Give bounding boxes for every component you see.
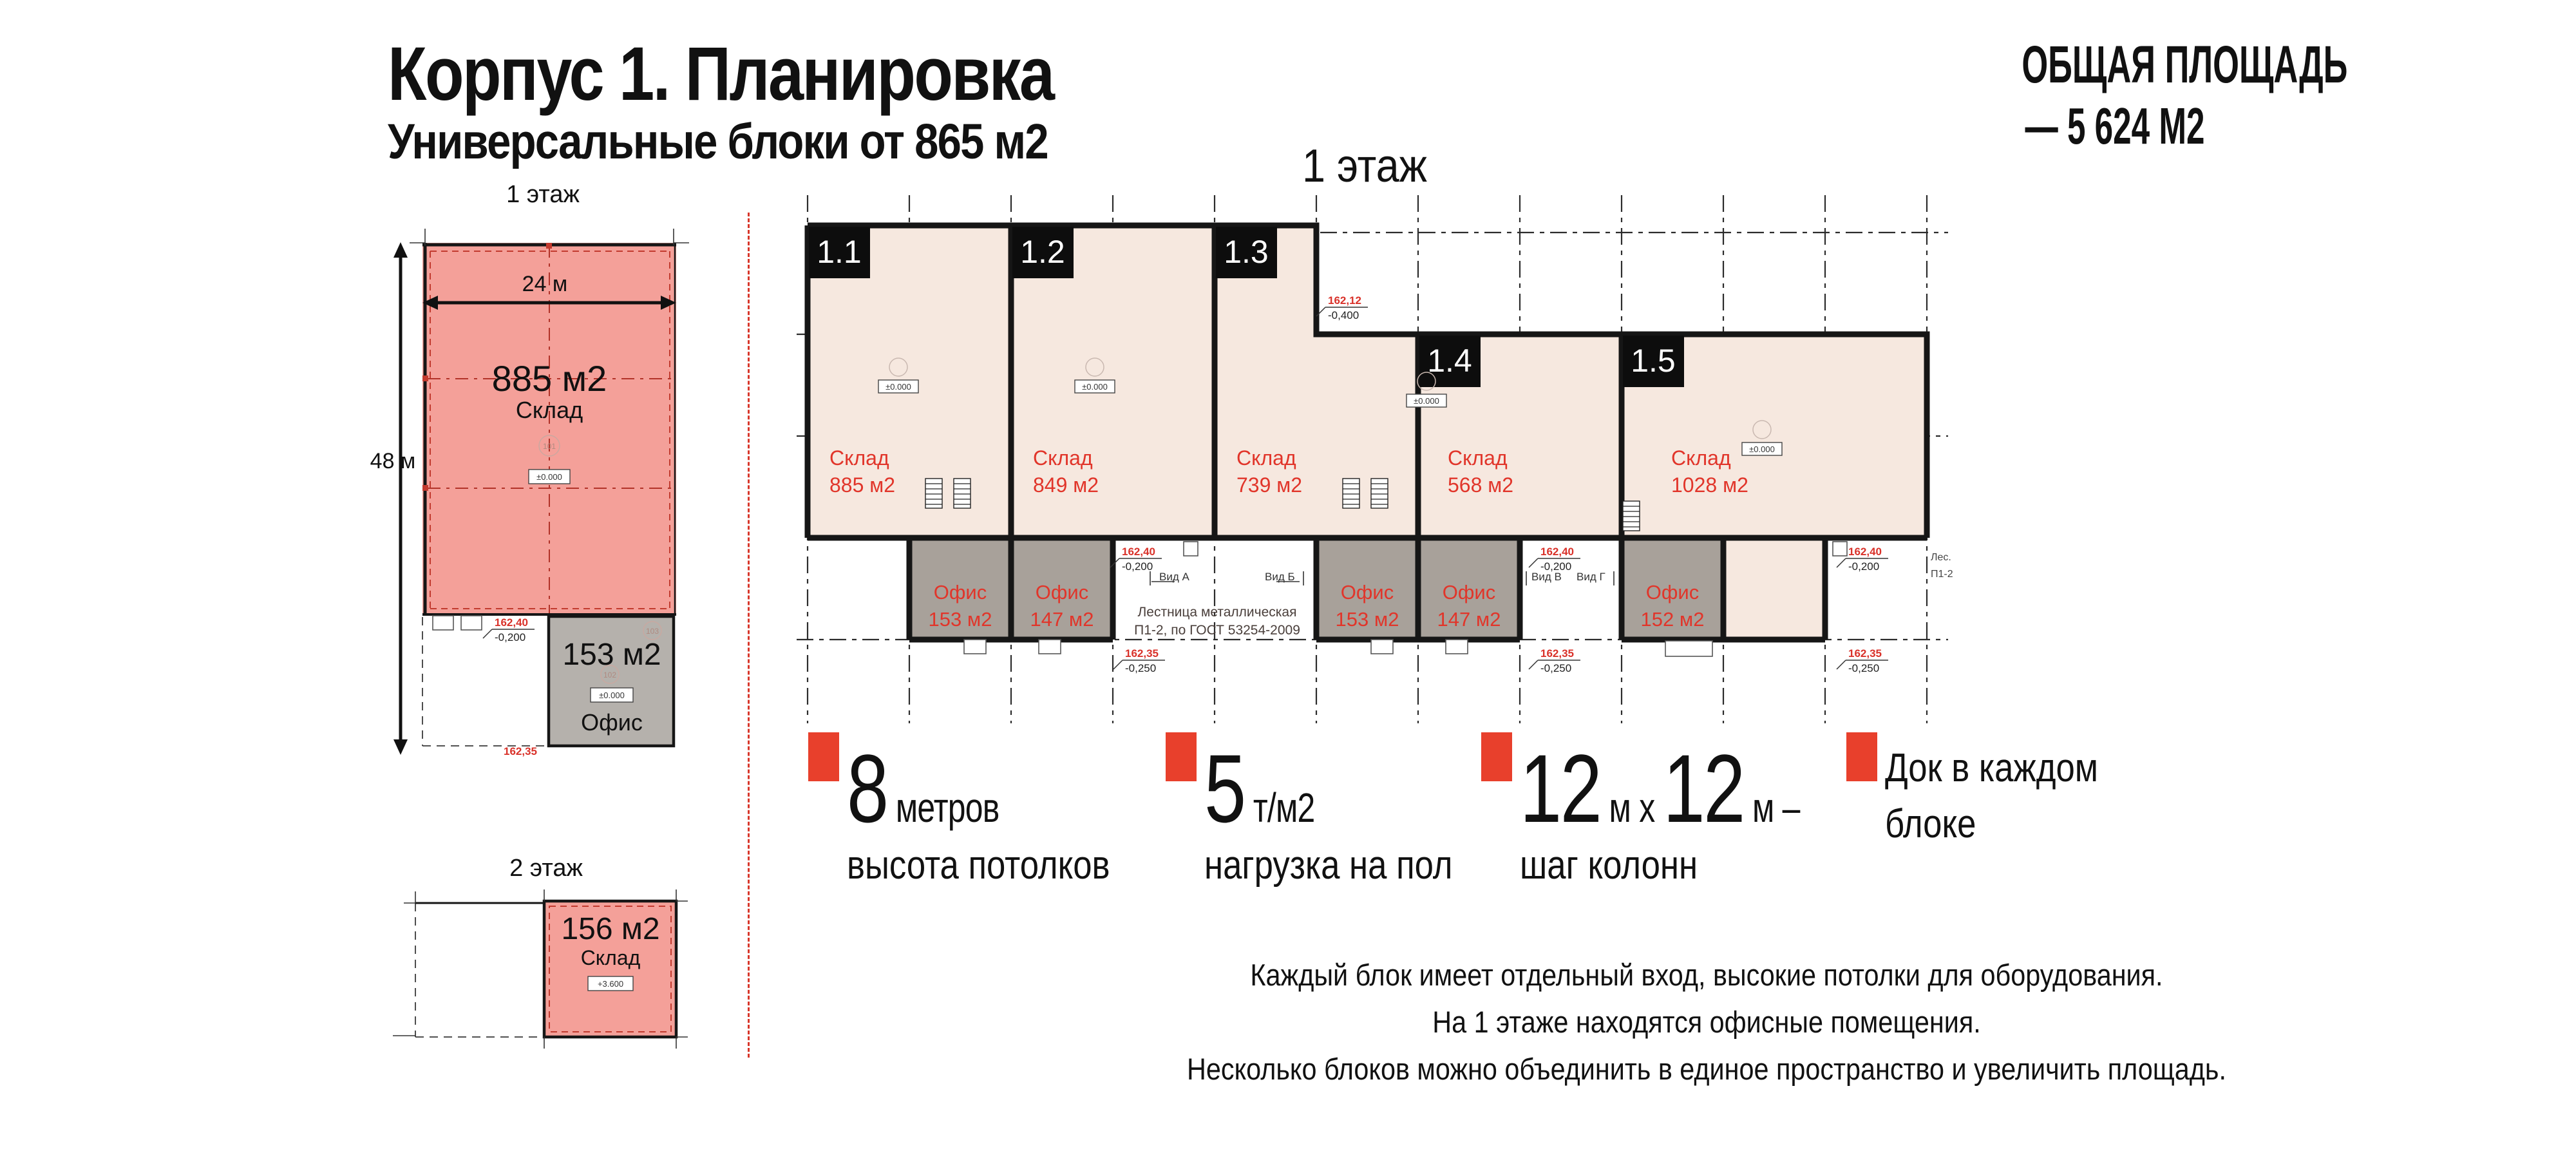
level-mark: 162,40 -0,200 — [1110, 546, 1162, 573]
svg-text:Склад: Склад — [829, 446, 889, 470]
feature-line1: Док в каждом — [1885, 745, 2098, 791]
floor2-warehouse-label: Склад — [581, 946, 641, 969]
svg-text:162,40: 162,40 — [1540, 546, 1574, 558]
office-area-value: 153 м2 — [562, 638, 661, 672]
floor2-label: 2 этаж — [509, 855, 583, 882]
svg-text:-0,200: -0,200 — [1122, 560, 1153, 573]
view-marker-g: Вид Г — [1577, 571, 1614, 585]
page-title: Корпус 1. Планировка — [388, 36, 1053, 112]
note-line: На 1 этаже находятся офисные помещения. — [1168, 1007, 2245, 1037]
level-mark-top: 162,40 -0,200 — [483, 616, 535, 643]
svg-text:153 м2: 153 м2 — [1336, 608, 1399, 631]
svg-text:-0,200: -0,200 — [1540, 560, 1571, 573]
svg-text:Склад: Склад — [1448, 446, 1508, 470]
level-mark: 162,35 -0,250 — [1529, 647, 1580, 674]
svg-text:Офис: Офис — [934, 581, 987, 604]
svg-text:1.3: 1.3 — [1224, 234, 1269, 270]
stairs-icon — [1343, 479, 1359, 508]
svg-text:101: 101 — [543, 442, 556, 451]
red-square-icon — [1481, 732, 1512, 781]
svg-text:П1-2: П1-2 — [1931, 569, 1953, 580]
svg-text:-0,400: -0,400 — [1328, 309, 1359, 321]
warehouse-label: Склад — [516, 397, 583, 423]
svg-text:147 м2: 147 м2 — [1030, 608, 1094, 631]
floor2-open-outline — [415, 903, 547, 1037]
total-area-title: ОБЩАЯ ПЛОЩАДЬ — [2022, 39, 2208, 91]
width-dim-label: 24 м — [522, 272, 568, 296]
svg-text:±0.000: ±0.000 — [536, 472, 562, 482]
svg-text:162,40: 162,40 — [1848, 546, 1882, 558]
floor1-doors — [433, 616, 482, 630]
depth-dimension: 48 м — [370, 242, 416, 755]
level-mark-bottom: 162,35 — [492, 745, 544, 757]
side-plan-floor2: 2 этаж 156 м2 Склад +3.600 — [383, 847, 724, 1076]
svg-text:162,12: 162,12 — [1328, 294, 1361, 307]
svg-text:Лес.: Лес. — [1931, 552, 1951, 563]
stairs-icon — [954, 479, 971, 508]
level-mark: 162,40 -0,200 — [1529, 546, 1580, 573]
stair-cut-label: Лес. П1-2 — [1931, 552, 1953, 580]
block-tag-1-2: 1.2 — [1012, 227, 1074, 278]
feature-value: 5 т/м2 — [1204, 741, 1432, 836]
svg-text:+3.600: +3.600 — [598, 979, 623, 989]
svg-text:±0.000: ±0.000 — [1414, 396, 1439, 406]
view-marker-a: Вид А — [1150, 571, 1189, 585]
svg-text:1.4: 1.4 — [1427, 343, 1472, 379]
svg-text:Офис: Офис — [1646, 581, 1699, 604]
svg-text:±0.000: ±0.000 — [599, 690, 625, 700]
svg-text:162,40: 162,40 — [1122, 546, 1155, 558]
feature-caption: нагрузка на пол — [1204, 842, 1453, 888]
svg-text:Склад: Склад — [1033, 446, 1093, 470]
notes-block: Каждый блок имеет отдельный вход, высоки… — [1095, 960, 2318, 1101]
svg-text:Офис: Офис — [1341, 581, 1394, 604]
side-plan-floor1: 1 этаж 24 м 48 м 885 м2 Скл — [357, 171, 724, 757]
main-plan-heading: 1 этаж — [1302, 143, 1427, 189]
feature-floor-load: 5 т/м2 нагрузка на пол — [1166, 732, 1497, 888]
svg-text:-0,250: -0,250 — [1848, 662, 1879, 674]
svg-text:±0.000: ±0.000 — [1082, 382, 1108, 392]
view-marker-b: Вид Б — [1265, 571, 1303, 585]
red-square-icon — [1846, 732, 1877, 781]
feature-ceiling-height: 8 метров высота потолков — [808, 732, 1157, 888]
floor2-elevation-box: +3.600 — [588, 976, 633, 991]
stairs-icon — [1623, 501, 1640, 531]
svg-text:П1-2, по ГОСТ 53254-2009: П1-2, по ГОСТ 53254-2009 — [1134, 623, 1300, 638]
total-area-block: ОБЩАЯ ПЛОЩАДЬ — 5 624 М2 — [1969, 39, 2260, 152]
level-mark: 162,35 -0,250 — [1113, 647, 1165, 674]
svg-text:162,35: 162,35 — [1848, 647, 1882, 660]
feature-column-grid: 12 м х 12 м – шаг колонн — [1481, 732, 1879, 888]
block-tag-1-5: 1.5 — [1623, 336, 1684, 387]
svg-text:739 м2: 739 м2 — [1236, 473, 1302, 497]
main-floor-plan: 1.1 1.2 1.3 1.4 1.5 Склад 885 м2 Склад 8… — [792, 190, 1958, 728]
page-subtitle: Универсальные блоки от 865 м2 — [388, 117, 1077, 167]
title-block: Корпус 1. Планировка Универсальные блоки… — [388, 36, 1180, 167]
svg-text:1.2: 1.2 — [1020, 234, 1065, 270]
svg-text:152 м2: 152 м2 — [1641, 608, 1705, 631]
note-line: Несколько блоков можно объединить в един… — [1168, 1054, 2245, 1084]
stair-bay-note: Лестница металлическая П1-2, по ГОСТ 532… — [1134, 605, 1300, 638]
svg-text:102: 102 — [603, 670, 616, 680]
svg-text:568 м2: 568 м2 — [1448, 473, 1513, 497]
block-tag-1-4: 1.4 — [1419, 336, 1481, 387]
floor1-label: 1 этаж — [506, 181, 580, 208]
svg-text:Вид Б: Вид Б — [1265, 571, 1295, 583]
svg-text:±0.000: ±0.000 — [885, 382, 911, 392]
svg-text:-0,200: -0,200 — [1848, 560, 1879, 573]
office-elevation-box: ±0.000 — [591, 688, 633, 702]
floor2-warehouse-area: 156 м2 — [561, 912, 659, 946]
svg-text:885 м2: 885 м2 — [829, 473, 895, 497]
feature-dock: Док в каждом блоке — [1846, 732, 2136, 847]
svg-text:103: 103 — [646, 627, 659, 636]
feature-line2: блоке — [1885, 801, 2098, 847]
view-marker-v: Вид В — [1526, 571, 1562, 585]
stairs-icon — [925, 479, 942, 508]
svg-text:1.1: 1.1 — [817, 234, 862, 270]
svg-text:162,35: 162,35 — [1540, 647, 1574, 660]
svg-text:±0.000: ±0.000 — [1749, 444, 1775, 454]
depth-dim-label: 48 м — [370, 449, 416, 473]
level-mark-step: 162,12 -0,400 — [1316, 294, 1368, 321]
building-fills — [808, 225, 1927, 640]
svg-text:Склад: Склад — [1671, 446, 1731, 470]
block-tag-1-3: 1.3 — [1216, 227, 1277, 278]
svg-text:Офис: Офис — [1443, 581, 1495, 604]
level-mark: 162,35 -0,250 — [1837, 647, 1888, 674]
svg-text:147 м2: 147 м2 — [1437, 608, 1501, 631]
block-tag-1-1: 1.1 — [809, 227, 870, 278]
brochure-page: Корпус 1. Планировка Универсальные блоки… — [0, 0, 2576, 1160]
svg-text:162,40: 162,40 — [495, 616, 528, 629]
feature-value: 8 метров — [847, 741, 1088, 836]
feature-caption: шаг колонн — [1520, 842, 1825, 888]
svg-text:162,35: 162,35 — [1125, 647, 1159, 660]
svg-text:849 м2: 849 м2 — [1033, 473, 1099, 497]
total-area-value: — 5 624 М2 — [2022, 100, 2208, 152]
svg-text:Вид А: Вид А — [1159, 571, 1189, 583]
red-square-icon — [808, 732, 839, 781]
svg-text:-0,200: -0,200 — [495, 631, 526, 643]
svg-text:1028 м2: 1028 м2 — [1671, 473, 1748, 497]
svg-text:1.5: 1.5 — [1631, 343, 1676, 379]
stairs-icon — [1371, 479, 1388, 508]
svg-text:-0,250: -0,250 — [1125, 662, 1156, 674]
svg-text:Вид Г: Вид Г — [1577, 571, 1605, 583]
svg-text:162,35: 162,35 — [504, 745, 537, 757]
feature-caption: высота потолков — [847, 842, 1110, 888]
warehouse-area-value: 885 м2 — [492, 358, 607, 399]
red-dashed-divider — [748, 213, 750, 1058]
svg-text:Лестница металлическая: Лестница металлическая — [1138, 605, 1297, 620]
svg-text:Офис: Офис — [1036, 581, 1088, 604]
red-square-icon — [1166, 732, 1197, 781]
svg-text:153 м2: 153 м2 — [929, 608, 992, 631]
svg-text:Склад: Склад — [1236, 446, 1296, 470]
feature-value: 12 м х 12 м – — [1520, 741, 1800, 836]
note-line: Каждый блок имеет отдельный вход, высоки… — [1168, 960, 2245, 990]
svg-text:-0,250: -0,250 — [1540, 662, 1571, 674]
office-label: Офис — [581, 709, 643, 736]
warehouse-elevation-box: ±0.000 — [529, 470, 570, 484]
